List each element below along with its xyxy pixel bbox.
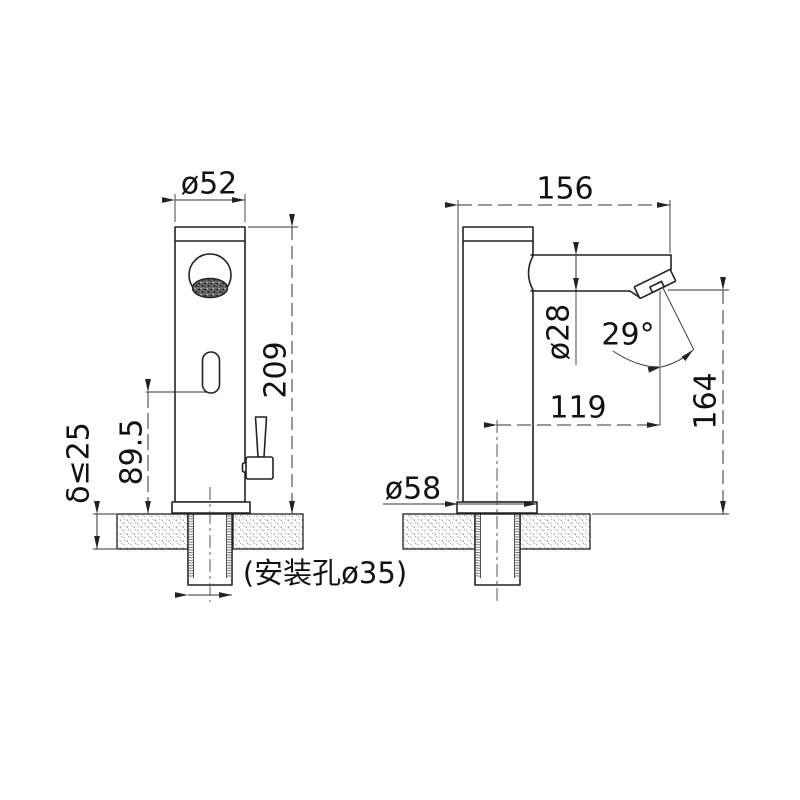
dim-label-base-diameter: ø58 xyxy=(385,472,442,507)
dim-label-spout-diameter: ø28 xyxy=(542,304,577,361)
dim-label-sensor-height: 89.5 xyxy=(115,419,150,486)
faucet-body-side xyxy=(463,227,533,502)
dim-label-deck-thickness: δ≤25 xyxy=(62,422,97,504)
dim-top-diameter: ø52 xyxy=(175,167,245,223)
sensor-window xyxy=(203,352,220,393)
dim-deck-thickness: δ≤25 xyxy=(62,422,117,549)
dim-label-top-diameter: ø52 xyxy=(181,167,238,202)
threaded-shank-side xyxy=(475,514,520,585)
countertop-right-block xyxy=(233,514,303,549)
dim-label-total-height: 209 xyxy=(259,341,294,398)
threaded-shank xyxy=(188,514,232,585)
side-view: 156 ø28 29° 119 164 xyxy=(383,172,729,603)
dim-spout-diameter: ø28 xyxy=(542,255,577,365)
dim-label-total-depth: 156 xyxy=(536,172,593,207)
dim-outlet-angle: 29° xyxy=(601,288,694,425)
dim-label-outlet-height: 164 xyxy=(689,372,724,429)
mixing-handle xyxy=(243,417,274,479)
countertop-left-block-side xyxy=(403,514,475,549)
technical-drawing: ø52 89.5 209 δ≤25 (安装孔ø35) xyxy=(0,0,800,800)
dim-label-outlet-angle: 29° xyxy=(601,318,654,353)
angle-inclined-line xyxy=(663,288,694,350)
angle-arc xyxy=(661,350,693,367)
front-view: ø52 89.5 209 δ≤25 (安装孔ø35) xyxy=(62,167,408,603)
countertop-right-block-side xyxy=(520,514,590,549)
dim-label-outlet-reach: 119 xyxy=(549,391,606,426)
sprayer-dome xyxy=(189,254,231,298)
mounting-hole-note: (安装孔ø35) xyxy=(243,556,407,590)
base-flange-front xyxy=(172,502,250,513)
handle-valve-body xyxy=(246,457,273,479)
aerator-face xyxy=(193,279,228,298)
drawing-canvas: ø52 89.5 209 δ≤25 (安装孔ø35) xyxy=(0,0,800,800)
countertop-left-block xyxy=(117,514,188,549)
spout-aerator xyxy=(634,269,676,298)
spout xyxy=(531,255,676,299)
